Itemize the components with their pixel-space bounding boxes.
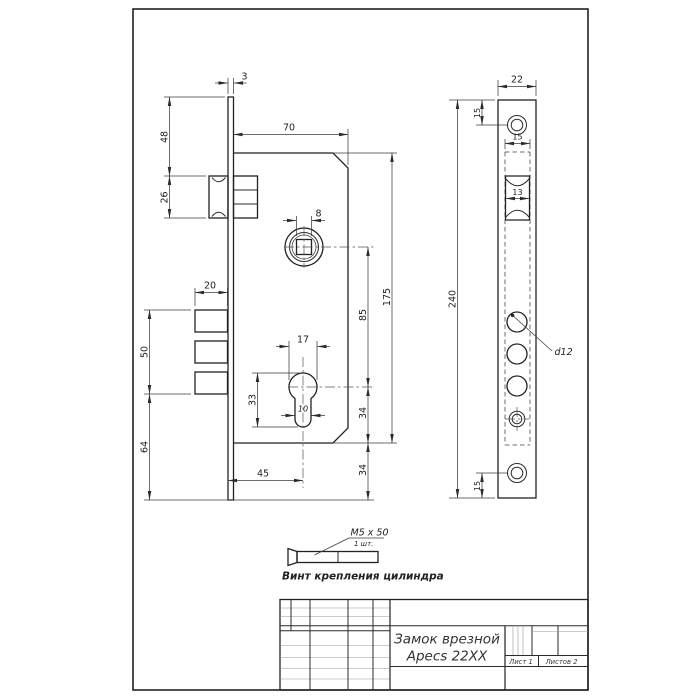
svg-text:85: 85 (358, 309, 369, 321)
svg-text:10: 10 (298, 405, 308, 414)
sheet-label: Лист 1 (508, 658, 533, 666)
svg-text:70: 70 (283, 123, 295, 134)
screw-caption: Винт крепления цилиндра (282, 571, 444, 583)
svg-text:13: 13 (512, 188, 522, 197)
svg-text:22: 22 (511, 75, 523, 86)
spindle-follower (284, 226, 374, 268)
screw-note: M5 x 50 1 шт. Винт крепления цилиндра (282, 528, 444, 583)
drawing-frame (133, 9, 588, 690)
bolt-diameter-callout: d12 (511, 314, 573, 358)
svg-text:48: 48 (160, 131, 171, 143)
note-leader-line (315, 538, 350, 555)
svg-text:15: 15 (512, 133, 522, 142)
svg-text:8: 8 (315, 209, 321, 220)
screw-hole-bottom (508, 464, 527, 483)
deadbolt-hole (507, 312, 527, 332)
dimension-axis-distance: 85 (358, 247, 369, 387)
sheets-label: Листов 2 (545, 658, 578, 666)
svg-text:45: 45 (257, 469, 269, 480)
deadbolt-pin (195, 310, 228, 332)
dimension-latch-height: 26 (160, 176, 207, 218)
dimension-bolts-span: 50 (140, 310, 192, 394)
svg-text:33: 33 (248, 394, 259, 406)
screw-drawing (288, 549, 378, 566)
svg-text:240: 240 (448, 290, 459, 308)
title-block: Замок врезной Apecs 22XX Лист 1 Листов 2 (280, 600, 588, 691)
drawing-sheet: 3 48 26 70 8 20 (0, 0, 700, 700)
dimension-bolt-width: 20 (195, 281, 228, 307)
svg-text:15: 15 (473, 108, 482, 118)
svg-text:26: 26 (160, 191, 171, 203)
sheet-cells: Лист 1 Листов 2 (505, 626, 588, 667)
technical-drawing: 3 48 26 70 8 20 (0, 0, 700, 700)
svg-text:d12: d12 (555, 347, 573, 358)
drawing-title: Замок врезной (394, 632, 500, 648)
cylinder-screw-hole (505, 407, 529, 431)
deadbolt-pin (195, 372, 228, 394)
dimension-top-to-latch: 48 (160, 97, 226, 176)
svg-text:64: 64 (140, 441, 151, 453)
revision-grid (280, 600, 390, 691)
screw-qty-label: 1 шт. (354, 540, 373, 548)
svg-text:50: 50 (140, 346, 151, 358)
svg-text:34: 34 (358, 407, 369, 419)
drawing-model: Apecs 22XX (406, 649, 488, 665)
dimension-bottom-screw: 15 (473, 473, 507, 498)
dimension-cylinder-height: 33 (248, 373, 300, 427)
faceplate-edge (228, 97, 234, 500)
svg-text:17: 17 (297, 335, 309, 346)
deadbolt-hole (507, 376, 527, 396)
svg-text:15: 15 (473, 481, 482, 491)
svg-text:175: 175 (382, 288, 393, 306)
deadbolt-pin (195, 341, 228, 363)
dimension-backset: 45 (228, 469, 303, 481)
dimension-latch-width: 13 (506, 188, 529, 199)
deadbolt-hole (507, 344, 527, 364)
faceplate-front-view: 13 d12 22 (448, 75, 573, 499)
dimension-body-to-plate: 34 (358, 443, 369, 500)
dimension-cylinder-to-body: 34 (358, 387, 369, 443)
dimension-body-height: 175 (333, 153, 397, 443)
dimension-plate-height: 240 (448, 100, 496, 498)
dimension-bottom-span: 64 (140, 394, 375, 500)
svg-text:34: 34 (358, 464, 369, 476)
dimension-plate-width: 22 (498, 75, 536, 97)
svg-text:20: 20 (204, 281, 216, 292)
svg-text:3: 3 (241, 72, 247, 83)
lock-side-view: 3 48 26 70 8 20 (140, 72, 398, 501)
dimension-body-width: 70 (234, 123, 349, 166)
dimension-slot-width: 15 (505, 133, 530, 150)
dimension-plate-thickness: 3 (215, 72, 248, 95)
latch-cutout (506, 176, 530, 220)
latch-bolt (209, 176, 258, 218)
screw-size-label: M5 x 50 (351, 528, 389, 539)
